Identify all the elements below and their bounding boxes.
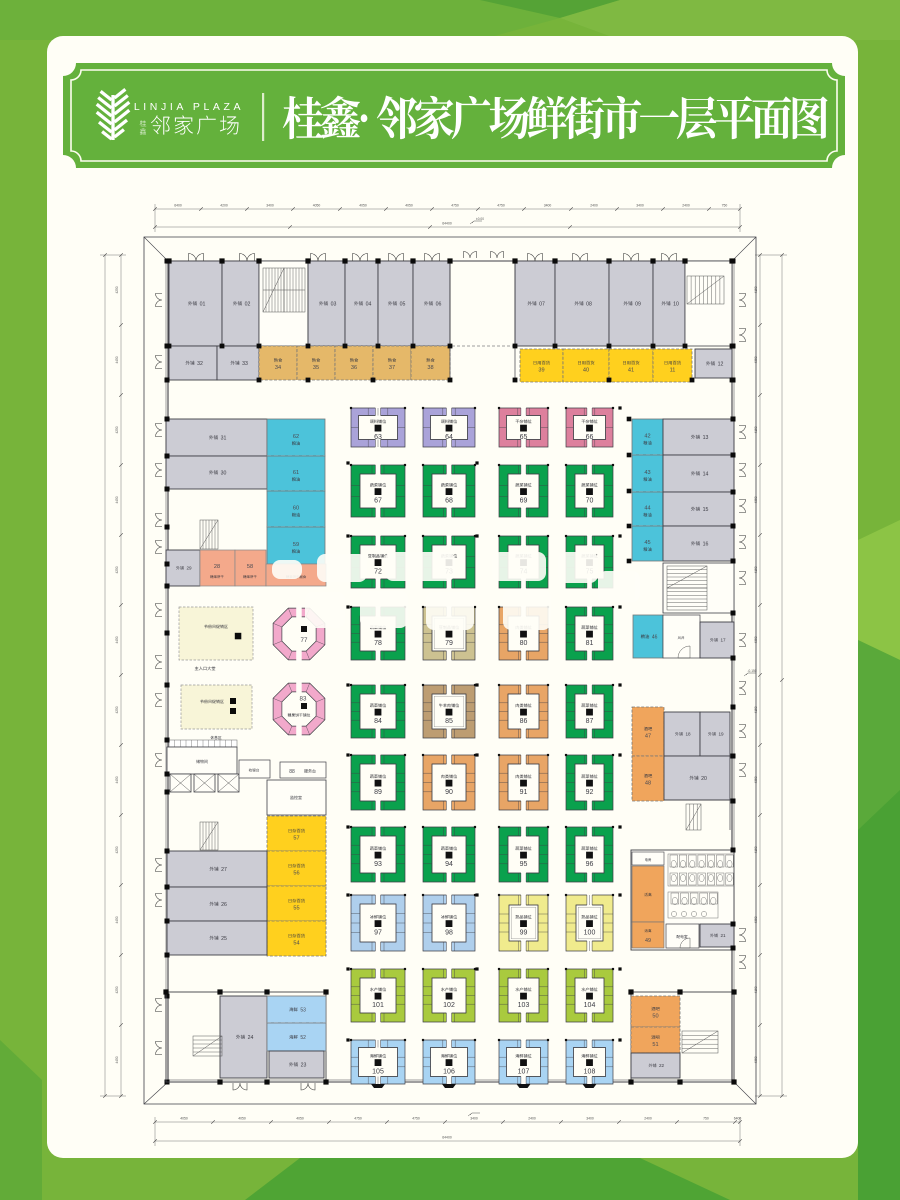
svg-text:30: 30 [221,470,227,476]
svg-text:4250: 4250 [115,986,119,993]
svg-text:4750: 4750 [497,204,505,208]
svg-text:4250: 4250 [115,566,119,573]
svg-text:2400: 2400 [590,204,598,208]
svg-text:06: 06 [436,301,442,307]
svg-text:-0.150: -0.150 [747,669,756,673]
svg-text:40: 40 [583,368,589,374]
svg-text:94: 94 [445,861,453,868]
svg-text:36: 36 [351,365,357,371]
svg-text:±0.00: ±0.00 [476,217,484,221]
svg-text:80: 80 [520,640,528,647]
svg-text:49: 49 [645,938,651,944]
svg-text:4250: 4250 [115,706,119,713]
svg-text:02: 02 [245,301,251,307]
svg-text:17: 17 [721,638,727,643]
svg-text:70: 70 [586,498,594,505]
svg-text:750: 750 [722,204,728,208]
svg-text:4450: 4450 [115,496,119,503]
svg-text:23: 23 [301,1062,307,1068]
svg-text:98: 98 [445,930,453,937]
svg-text:28: 28 [214,564,220,570]
svg-text:04: 04 [366,301,372,307]
svg-text:4450: 4450 [115,776,119,783]
svg-text:106: 106 [443,1069,455,1076]
svg-text:38: 38 [427,365,433,371]
svg-text:100: 100 [584,930,596,937]
svg-text:79: 79 [445,640,453,647]
svg-text:52: 52 [300,1035,306,1041]
svg-text:4750: 4750 [451,204,459,208]
svg-text:26: 26 [221,902,227,908]
svg-text:19: 19 [719,732,725,737]
svg-text:48: 48 [645,781,651,787]
svg-text:07: 07 [539,301,545,307]
svg-text:61: 61 [293,470,299,476]
svg-text:105: 105 [372,1069,384,1076]
svg-text:83: 83 [300,696,307,703]
svg-text:45: 45 [644,540,650,546]
svg-text:44: 44 [644,505,650,511]
svg-text:85: 85 [445,718,453,725]
svg-text:107: 107 [518,1069,530,1076]
svg-text:4450: 4450 [115,1056,119,1063]
svg-text:2400: 2400 [644,1117,652,1121]
svg-text:54: 54 [293,941,299,947]
svg-text:31: 31 [221,435,227,441]
svg-text:25: 25 [221,936,227,942]
svg-text:4050: 4050 [405,204,413,208]
svg-text:14: 14 [703,471,709,477]
svg-text:4200: 4200 [220,204,228,208]
svg-text:750: 750 [703,1117,709,1121]
svg-text:93: 93 [374,861,382,868]
svg-text:27: 27 [221,867,227,873]
svg-text:41: 41 [628,368,634,374]
svg-text:4050: 4050 [180,1117,188,1121]
svg-text:72: 72 [374,569,382,576]
svg-text:37: 37 [389,365,395,371]
svg-text:89: 89 [374,789,382,796]
svg-text:55: 55 [293,906,299,912]
svg-text:95: 95 [520,861,528,868]
svg-text:99: 99 [520,930,528,937]
svg-text:4050: 4050 [313,204,321,208]
svg-text:12: 12 [718,361,724,367]
svg-text:05: 05 [400,301,406,307]
svg-text:53: 53 [300,1007,306,1013]
svg-text:22: 22 [659,1063,665,1068]
svg-text:4050: 4050 [296,1117,304,1121]
svg-text:6400: 6400 [174,204,182,208]
svg-text:LINJIA PLAZA: LINJIA PLAZA [134,101,244,113]
svg-text:2400: 2400 [682,204,690,208]
svg-text:67: 67 [374,498,382,505]
svg-text:2400: 2400 [528,1117,536,1121]
svg-text:03: 03 [331,301,337,307]
svg-text:59: 59 [293,542,299,548]
svg-text:16: 16 [703,541,709,547]
svg-text:64400: 64400 [442,222,452,226]
svg-text:92: 92 [586,789,594,796]
svg-text:91: 91 [520,789,528,796]
svg-text:3400: 3400 [470,1117,478,1121]
svg-text:15: 15 [703,507,709,513]
svg-text:4450: 4450 [115,636,119,643]
svg-text:39: 39 [538,368,544,374]
svg-text:63: 63 [374,434,382,441]
svg-text:66: 66 [586,434,594,441]
svg-text:103: 103 [518,1002,530,1009]
svg-text:3400: 3400 [544,204,552,208]
svg-text:4250: 4250 [115,846,119,853]
svg-text:08: 08 [586,301,592,307]
svg-text:56: 56 [293,871,299,877]
svg-text:64400: 64400 [442,1136,452,1140]
svg-text:3400: 3400 [636,204,644,208]
svg-text:10: 10 [673,301,679,307]
svg-text:86: 86 [520,718,528,725]
svg-text:4250: 4250 [115,286,119,293]
svg-text:4050: 4050 [238,1117,246,1121]
svg-text:104: 104 [584,1002,596,1009]
svg-text:4250: 4250 [115,426,119,433]
svg-text:78: 78 [374,640,382,647]
svg-text:13: 13 [703,435,709,441]
svg-text:4450: 4450 [115,356,119,363]
svg-text:24: 24 [248,1035,254,1041]
svg-text:57: 57 [293,836,299,842]
svg-text:43: 43 [644,470,650,476]
svg-text:46: 46 [652,634,658,640]
svg-text:108: 108 [584,1069,596,1076]
svg-text:77: 77 [301,637,308,644]
svg-text:84: 84 [374,718,382,725]
svg-text:32: 32 [197,361,203,367]
svg-text:69: 69 [520,498,528,505]
svg-text:33: 33 [242,361,248,367]
svg-text:09: 09 [635,301,641,307]
svg-text:11: 11 [670,368,676,374]
svg-text:47: 47 [645,734,651,740]
svg-text:3400: 3400 [586,1117,594,1121]
svg-text:20: 20 [701,776,707,782]
svg-text:87: 87 [586,718,594,725]
svg-text:88: 88 [289,769,295,775]
svg-text:97: 97 [374,930,382,937]
svg-text:58: 58 [247,564,253,570]
svg-text:4050: 4050 [359,204,367,208]
svg-text:4750: 4750 [354,1117,362,1121]
svg-text:21: 21 [721,933,727,938]
svg-text:6400: 6400 [734,1117,742,1121]
svg-text:34: 34 [275,365,281,371]
svg-text:81: 81 [586,640,594,647]
svg-text:96: 96 [586,861,594,868]
svg-text:51: 51 [652,1042,658,1048]
svg-text:42: 42 [644,433,650,439]
svg-text:35: 35 [313,365,319,371]
svg-text:65: 65 [520,434,528,441]
svg-text:01: 01 [200,301,206,307]
svg-text:3400: 3400 [266,204,274,208]
svg-text:64: 64 [445,434,453,441]
svg-text:50: 50 [652,1014,658,1020]
svg-text:62: 62 [293,434,299,440]
svg-text:101: 101 [372,1002,384,1009]
svg-text:4450: 4450 [115,916,119,923]
svg-text:60: 60 [293,505,299,511]
svg-text:102: 102 [443,1002,455,1009]
svg-text:18: 18 [686,732,692,737]
svg-text:4750: 4750 [412,1117,420,1121]
svg-text:68: 68 [445,498,453,505]
svg-text:29: 29 [187,566,193,571]
svg-text:90: 90 [445,789,453,796]
